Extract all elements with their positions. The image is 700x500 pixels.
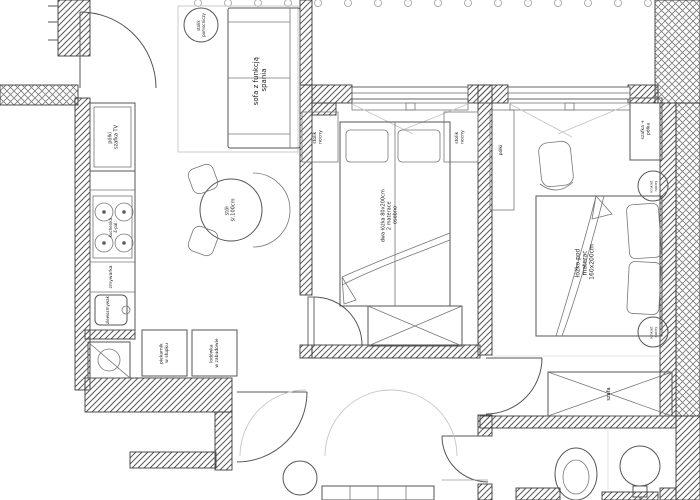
sofa-label: sofa z funkcją spania xyxy=(252,55,268,106)
bedroom-middle: stolik nocny stolik nocny dwa łóżka 80x2… xyxy=(302,112,478,346)
stove-label: kuchenka 4-pal. xyxy=(108,217,118,237)
washing-machine xyxy=(88,342,130,378)
pillow xyxy=(346,130,388,162)
tv-cabinet: półki szafka TV xyxy=(90,103,135,171)
chair xyxy=(538,140,574,190)
tv-cabinet-label: półki szafka TV xyxy=(107,124,120,149)
window-middle-bedroom xyxy=(352,87,468,134)
oven-column-label: piekarnik w słupku xyxy=(159,342,171,364)
sink: zlewozmywak xyxy=(95,295,130,325)
dresser xyxy=(368,306,462,346)
hallway xyxy=(240,390,457,500)
dining-chair-top xyxy=(186,162,219,195)
double-bed: łóżko pod materac 160x200cm xyxy=(536,196,662,336)
bath-cabinet xyxy=(516,488,560,500)
stove: kuchenka 4-pal. xyxy=(93,196,133,258)
window-right-bedroom xyxy=(508,87,630,137)
right-bedroom-door xyxy=(486,358,542,414)
hall-cabinet-row xyxy=(322,486,434,500)
wardrobe-label: szafa xyxy=(606,387,612,400)
nightstand-right: stolik nocny xyxy=(444,112,478,162)
sconce-top-label: kinkiet nocny xyxy=(650,179,659,192)
twin-beds-label: dwa łóżka 80x200cm 2 materace osobno xyxy=(380,188,399,243)
wall-tick-marks xyxy=(48,6,58,40)
toilet xyxy=(555,448,597,500)
dishwasher-label: zmywarka xyxy=(108,265,114,288)
nightstand-right-label: stolik nocny xyxy=(454,130,466,144)
bedroom-right: półki łóżko pod materac 160x200cm szafka… xyxy=(490,98,672,416)
dining-set: stół śr.100cm xyxy=(186,162,290,257)
dining-table-label: stół śr.100cm xyxy=(224,198,237,221)
bathroom xyxy=(516,428,676,500)
wardrobe: szafa xyxy=(548,372,672,416)
fridge: lodówka w zabudowie xyxy=(192,330,237,376)
bath-cabinet xyxy=(660,488,676,500)
hall-marker-circle xyxy=(283,461,317,495)
living-kitchen-room: sofa z funkcją spania stolik pomocniczy … xyxy=(88,6,300,378)
sink-label: zlewozmywak xyxy=(105,295,110,323)
double-bed-label: łóżko pod materac 160x200cm xyxy=(575,244,596,280)
twin-beds: dwa łóżka 80x200cm 2 materace osobno xyxy=(340,122,450,306)
hallway-door xyxy=(237,392,307,462)
middle-bedroom-door xyxy=(308,297,362,345)
ceiling-track-dots xyxy=(195,0,652,7)
fridge-label: lodówka w zabudowie xyxy=(208,338,221,367)
floor-plan-drawing: sofa z funkcją spania stolik pomocniczy … xyxy=(0,0,700,500)
dining-bench-arc xyxy=(253,173,290,247)
wall-cabinet-shelves: szafka + półka xyxy=(630,98,662,160)
side-table: stolik pomocniczy xyxy=(184,8,218,42)
pillow xyxy=(626,203,662,259)
bathroom-door xyxy=(442,436,488,482)
wall-cabinet-label: szafka + półka xyxy=(640,119,652,140)
pillow xyxy=(398,130,440,162)
oven-column: piekarnik w słupku xyxy=(142,330,187,376)
pillow xyxy=(627,261,662,315)
blanket-fold xyxy=(342,233,450,304)
shelving-label: półki xyxy=(497,145,504,156)
sofa: sofa z funkcją spania xyxy=(228,8,300,148)
sconce-bottom-label: kinkiet nocny xyxy=(650,325,659,338)
bath-cabinet xyxy=(602,492,658,500)
floor-plan-page: sofa z funkcją spania stolik pomocniczy … xyxy=(0,0,700,500)
side-table-label: stolik pomocniczy xyxy=(196,12,206,36)
nightstand-left-label: stolik nocny xyxy=(312,130,324,144)
shelving-unit: półki xyxy=(490,110,514,210)
dining-chair-bottom xyxy=(186,224,219,257)
bifold-door-arcs xyxy=(240,390,457,456)
faucet-icon xyxy=(122,306,130,314)
entry-door xyxy=(80,12,156,88)
